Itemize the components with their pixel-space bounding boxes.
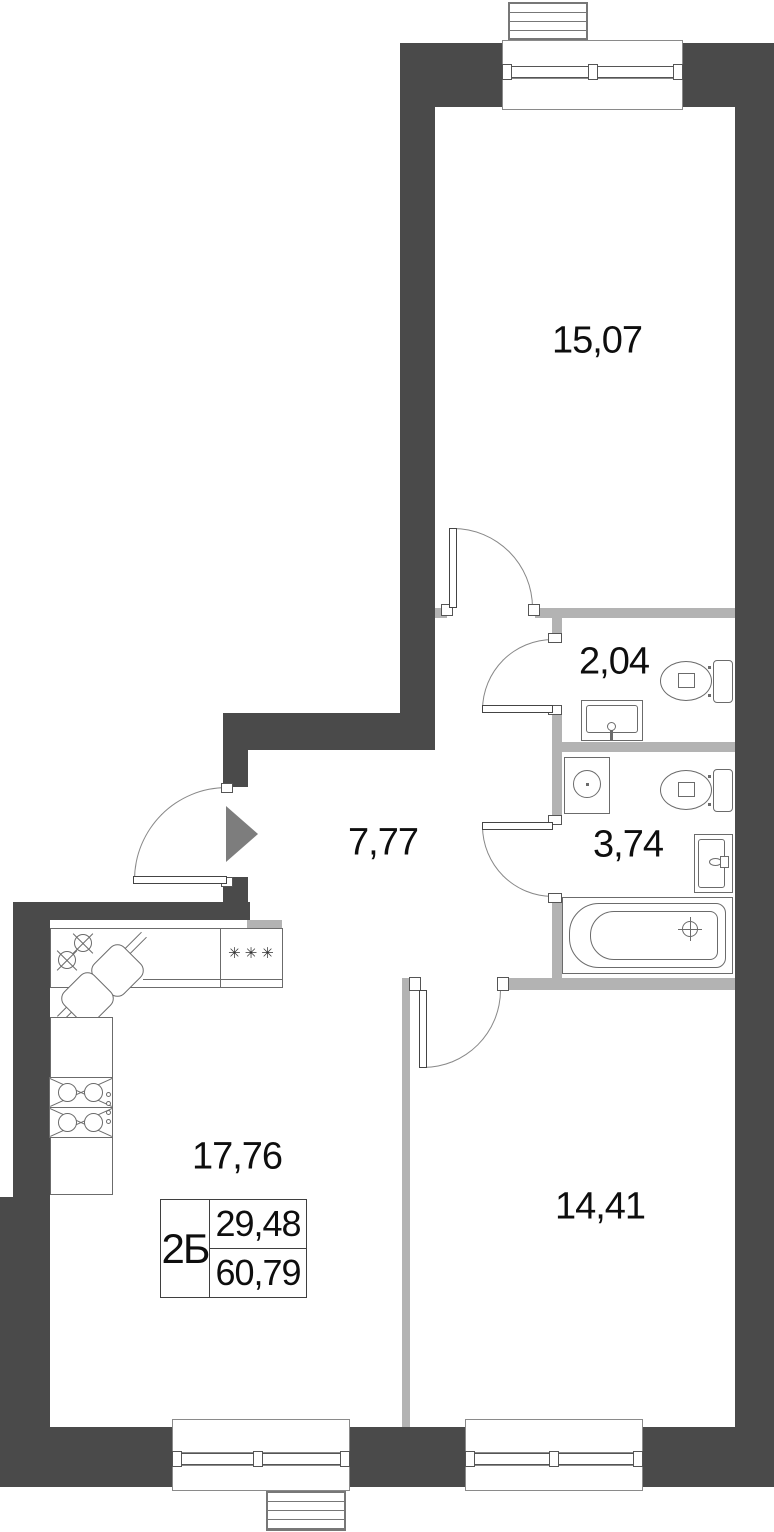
window-bl-mullion-center — [253, 1451, 263, 1467]
wall-hallway-top — [223, 713, 435, 750]
bathtub-basin — [590, 911, 718, 960]
toilet-cistern — [713, 769, 733, 812]
window-top-inner-sill — [502, 78, 683, 110]
window-br-mullion-left — [465, 1451, 475, 1467]
wall-bottom-right — [643, 1427, 774, 1487]
wall-entry-jamb-upper — [223, 750, 248, 787]
stove-symbol-icon: ✳✳✳ — [224, 944, 282, 962]
bedroom-door-leaf — [419, 990, 427, 1068]
stove-divider — [49, 1107, 113, 1108]
room-label-bedroom: 14,41 — [555, 1186, 645, 1229]
entry-door-jamb-top — [221, 783, 233, 793]
toilet-button — [678, 673, 695, 688]
wall-left-lower — [0, 1197, 50, 1427]
window-top-mullion-center — [588, 64, 598, 80]
wall-left-upper — [13, 920, 50, 1197]
bath-door-swing-arc — [482, 826, 553, 897]
stove-burner — [84, 1113, 103, 1132]
window-bl-outer-sill — [172, 1465, 350, 1491]
entrance-arrow-icon — [226, 806, 258, 862]
bedroom-door-jamb-right — [497, 977, 509, 991]
wc-door-jamb-top — [548, 633, 562, 643]
stove-knob — [106, 1092, 111, 1097]
entry-door-swing-arc — [134, 787, 227, 880]
wall-wc-bath — [562, 742, 735, 752]
floor-plan: ✳✳✳ 15,07 2,04 7,77 3,74 17,76 14,41 2Б … — [0, 0, 774, 1532]
wall-bath-bedroom — [503, 978, 735, 990]
stove-knob — [106, 1101, 111, 1106]
wall-kitchen-bedroom — [402, 990, 410, 1427]
sink-faucet-stem — [610, 730, 613, 740]
wc-door-leaf — [482, 705, 553, 713]
wall-bottom-left — [0, 1427, 172, 1487]
wall-living-left — [400, 107, 435, 750]
room-label-bathroom: 3,74 — [593, 824, 663, 867]
wall-kitchen-cap — [247, 920, 282, 928]
stove-burner — [84, 1083, 103, 1102]
balcony-hatch-bottom — [266, 1491, 346, 1531]
stove-burner — [58, 1113, 77, 1132]
toilet-button — [678, 782, 695, 797]
toilet-cistern — [713, 660, 733, 703]
wall-entry-horizontal — [13, 902, 250, 920]
living-door-leaf — [449, 528, 457, 608]
window-top-mullion-right — [673, 64, 683, 80]
stove-knob — [106, 1110, 111, 1115]
wall-hall-mid — [552, 715, 562, 818]
window-br-outer-sill — [465, 1465, 643, 1491]
apartment-stamp: 2Б 29,48 60,79 — [160, 1199, 307, 1298]
living-area-value: 29,48 — [210, 1200, 306, 1249]
stove-knob — [106, 1119, 111, 1124]
window-br-mullion-right — [633, 1451, 643, 1467]
wall-bottom-pier — [350, 1427, 465, 1487]
bath-door-leaf — [482, 822, 553, 830]
apartment-type: 2Б — [161, 1200, 210, 1297]
window-top-mullion-left — [502, 64, 512, 80]
toilet-dot — [708, 666, 711, 669]
wall-top-right — [683, 43, 774, 107]
wall-hall-lower — [552, 901, 562, 978]
wall-top-left — [400, 43, 503, 107]
window-br-mullion-center — [549, 1451, 559, 1467]
wc-door-swing-arc — [482, 639, 553, 710]
living-door-swing-arc — [453, 528, 533, 608]
toilet-dot — [708, 775, 711, 778]
living-door-jamb-right — [528, 604, 540, 616]
sink-faucet-stem — [720, 856, 729, 868]
bath-door-jamb-bottom — [548, 893, 562, 903]
fridge-divider — [220, 928, 221, 988]
room-label-hallway: 7,77 — [348, 822, 418, 865]
wall-living-wc — [535, 608, 735, 618]
bathtub-drain-cross-v — [690, 917, 691, 941]
window-bl-mullion-right — [340, 1451, 350, 1467]
bedroom-door-swing-arc — [423, 990, 501, 1068]
room-label-kitchen: 17,76 — [192, 1136, 282, 1179]
window-br-inner-sill — [465, 1419, 643, 1453]
kitchen-counter-edge — [143, 979, 283, 980]
bedroom-door-jamb-left — [409, 977, 421, 991]
room-label-living: 15,07 — [552, 320, 642, 363]
wall-right — [735, 107, 774, 1427]
entry-door-leaf — [133, 876, 227, 884]
stove-burner — [58, 1083, 77, 1102]
washing-machine-dot — [586, 783, 589, 786]
room-label-wc: 2,04 — [579, 641, 649, 684]
balcony-hatch-top — [508, 2, 588, 40]
toilet-dot — [708, 694, 711, 697]
total-area-value: 60,79 — [210, 1249, 306, 1297]
window-bl-mullion-left — [172, 1451, 182, 1467]
window-bl-inner-sill — [172, 1419, 350, 1453]
toilet-dot — [708, 803, 711, 806]
window-top-outer-sill — [502, 40, 683, 67]
